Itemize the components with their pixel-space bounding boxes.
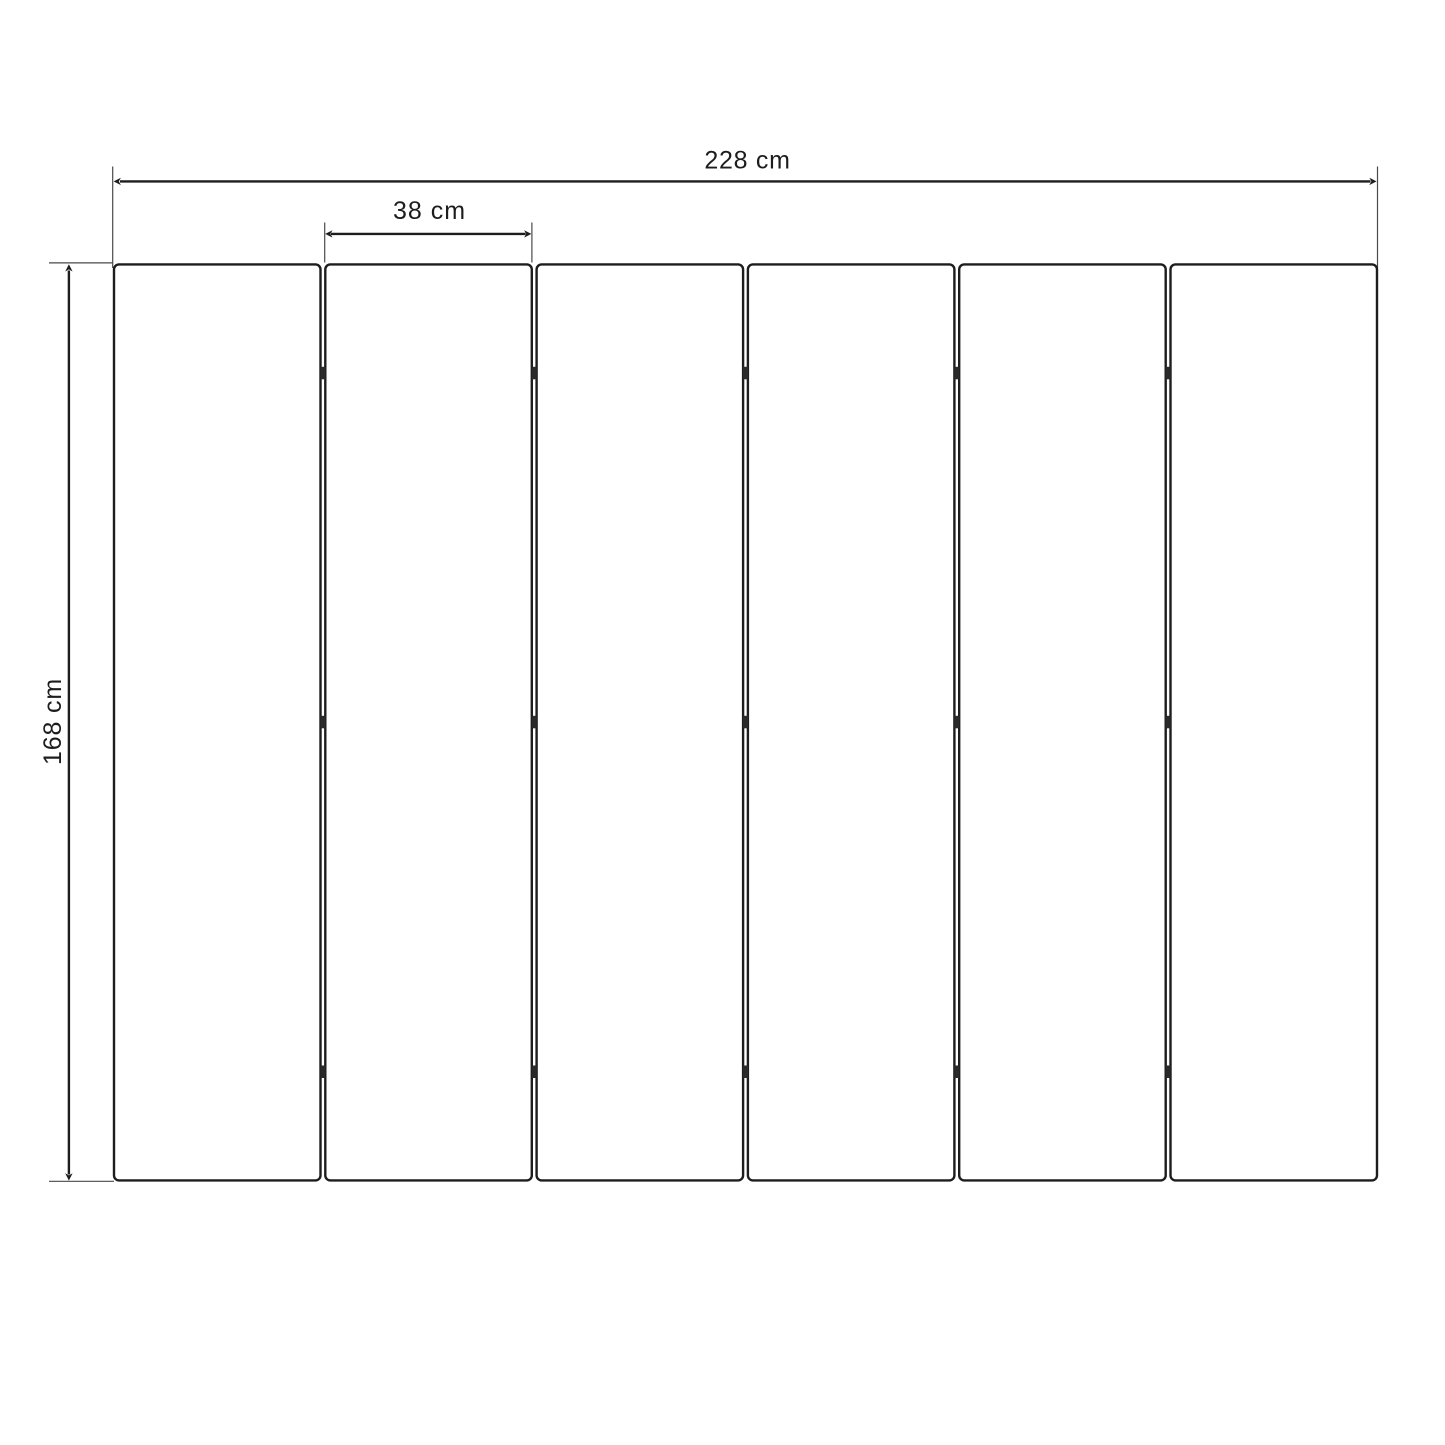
svg-text:38 cm: 38 cm: [393, 197, 466, 225]
svg-text:168 cm: 168 cm: [39, 678, 67, 765]
svg-text:228 cm: 228 cm: [704, 147, 790, 175]
